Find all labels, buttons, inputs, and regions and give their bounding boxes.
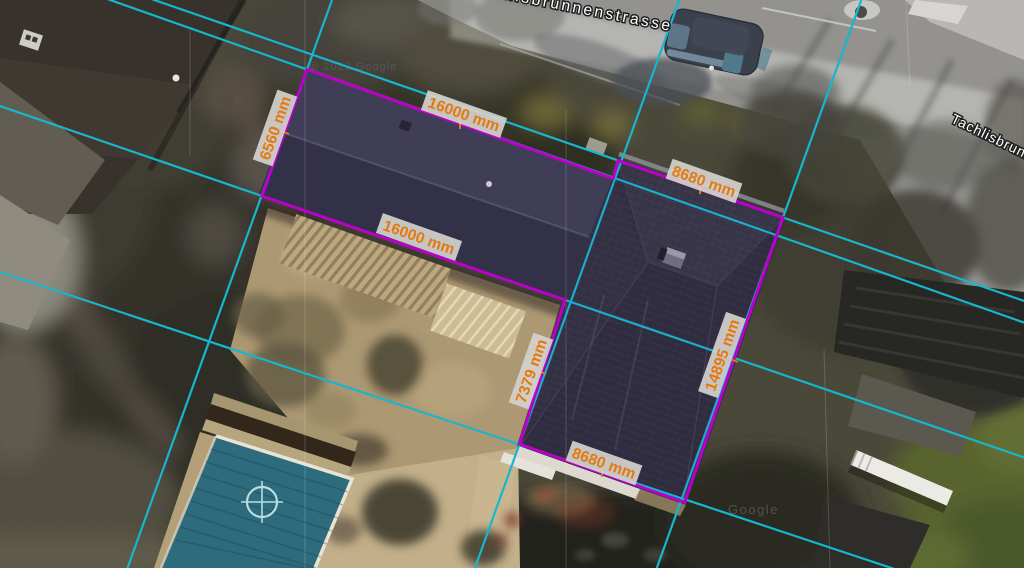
svg-text:© 2022 Google: © 2022 Google [310,61,397,73]
svg-text:Google: Google [728,502,779,517]
